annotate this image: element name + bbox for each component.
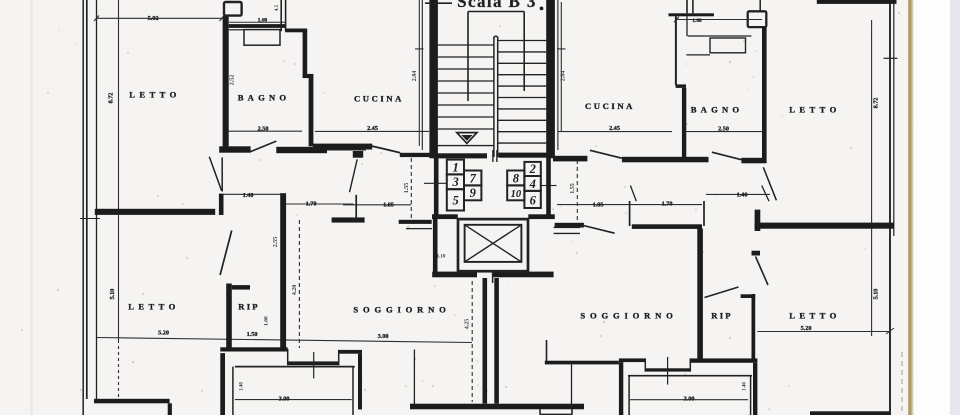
svg-text:2.45: 2.45 bbox=[367, 125, 378, 132]
svg-text:4: 4 bbox=[529, 177, 536, 191]
svg-text:1.40: 1.40 bbox=[737, 192, 748, 199]
svg-text:3.00: 3.00 bbox=[378, 333, 389, 340]
svg-text:10: 10 bbox=[511, 189, 522, 200]
svg-text:6: 6 bbox=[530, 194, 537, 208]
svg-text:4.5: 4.5 bbox=[275, 4, 280, 11]
svg-text:1.60: 1.60 bbox=[264, 316, 270, 326]
svg-text:5.20: 5.20 bbox=[158, 330, 169, 337]
svg-text:LETTO: LETTO bbox=[789, 311, 840, 321]
svg-text:3: 3 bbox=[451, 175, 458, 189]
svg-text:2.45: 2.45 bbox=[609, 125, 620, 132]
svg-text:LETTO: LETTO bbox=[129, 90, 180, 100]
svg-text:5.10: 5.10 bbox=[109, 289, 116, 300]
svg-text:2.84: 2.84 bbox=[561, 71, 567, 82]
svg-text:1.70: 1.70 bbox=[662, 201, 673, 208]
svg-text:2: 2 bbox=[529, 162, 536, 176]
svg-text:1.10: 1.10 bbox=[437, 255, 446, 260]
svg-text:2.52: 2.52 bbox=[230, 75, 236, 86]
svg-text:1.40: 1.40 bbox=[239, 382, 244, 391]
svg-text:CUCINA: CUCINA bbox=[585, 101, 635, 111]
svg-text:9: 9 bbox=[470, 186, 477, 200]
svg-text:5: 5 bbox=[452, 194, 458, 208]
svg-text:2.50: 2.50 bbox=[718, 125, 729, 132]
svg-text:Scala B 3: Scala B 3 bbox=[457, 0, 537, 11]
svg-text:RIP: RIP bbox=[238, 302, 259, 312]
svg-text:1.40: 1.40 bbox=[742, 382, 747, 391]
svg-text:1.60: 1.60 bbox=[692, 18, 702, 24]
svg-text:SOGGIORNO: SOGGIORNO bbox=[580, 311, 677, 321]
svg-text:LETTO: LETTO bbox=[789, 104, 840, 114]
svg-text:1.55: 1.55 bbox=[404, 183, 410, 194]
svg-text:1.70: 1.70 bbox=[306, 201, 317, 208]
svg-text:2.50: 2.50 bbox=[258, 125, 269, 132]
svg-text:7: 7 bbox=[470, 171, 477, 185]
svg-text:3.00: 3.00 bbox=[684, 396, 695, 403]
svg-text:8: 8 bbox=[513, 171, 520, 185]
svg-text:1.85: 1.85 bbox=[593, 201, 604, 208]
svg-text:LETTO: LETTO bbox=[128, 302, 179, 312]
svg-text:2.84: 2.84 bbox=[412, 71, 418, 82]
svg-text:4.25: 4.25 bbox=[465, 319, 471, 330]
svg-text:SOGGIORNO: SOGGIORNO bbox=[353, 305, 450, 315]
svg-text:1.55: 1.55 bbox=[570, 183, 576, 194]
svg-text:1.85: 1.85 bbox=[383, 201, 394, 208]
svg-text:8.72: 8.72 bbox=[873, 98, 880, 109]
svg-text:2.55: 2.55 bbox=[273, 237, 279, 248]
svg-text:CUCINA: CUCINA bbox=[354, 94, 404, 104]
svg-text:8.72: 8.72 bbox=[108, 93, 115, 104]
svg-text:5.02: 5.02 bbox=[148, 15, 159, 22]
svg-text:BAGNO: BAGNO bbox=[691, 104, 744, 114]
svg-text:5.10: 5.10 bbox=[873, 289, 880, 300]
svg-text:4.20: 4.20 bbox=[292, 285, 298, 296]
svg-text:BAGNO: BAGNO bbox=[238, 93, 291, 103]
svg-text:5.20: 5.20 bbox=[801, 325, 812, 332]
svg-text:3.00: 3.00 bbox=[279, 396, 290, 403]
svg-text:1.40: 1.40 bbox=[243, 192, 254, 199]
svg-text:1.50: 1.50 bbox=[247, 331, 258, 338]
svg-text:1: 1 bbox=[452, 160, 458, 174]
svg-text:RIP: RIP bbox=[711, 311, 732, 321]
